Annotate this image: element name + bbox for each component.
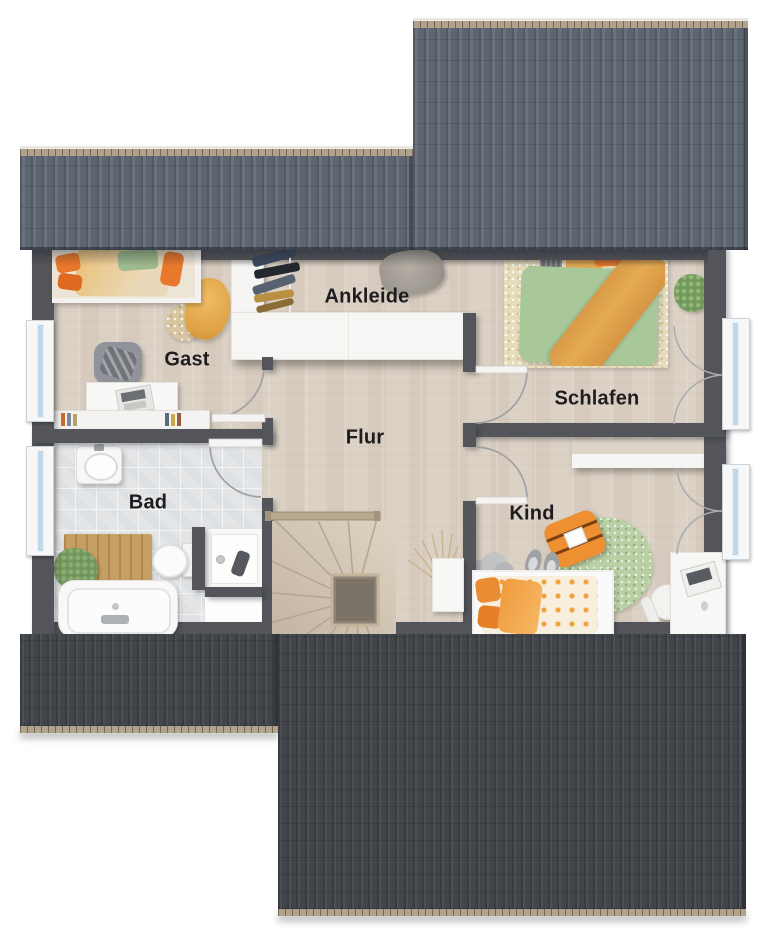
schlafen-door-leaf	[476, 366, 527, 373]
schlafen-window-arc-upper	[674, 326, 722, 375]
schlafen-door-arc	[476, 372, 527, 423]
stair-void-shade	[336, 579, 374, 621]
room-label-bad: Bad	[129, 492, 167, 515]
floor-plan-canvas: Gast Ankleide Schlafen Flur Bad Kind	[0, 0, 775, 945]
gast-door-leaf	[212, 414, 265, 422]
roof-top-right-ridge	[413, 21, 748, 28]
schlafen-window-arc-lower	[674, 375, 722, 424]
flur-planter	[432, 558, 464, 612]
stair-handrail-post-left	[265, 511, 271, 521]
stair-handrail	[266, 512, 380, 520]
roof-bottom-right-eave	[278, 909, 746, 916]
stair-handrail-post-right	[374, 511, 380, 521]
roof-top-left-ridge	[20, 149, 413, 156]
room-label-flur: Flur	[346, 427, 385, 450]
roof-bottom-left	[20, 634, 278, 726]
kind-window-arc-lower	[677, 511, 722, 554]
room-label-kind: Kind	[509, 503, 554, 526]
room-label-gast: Gast	[164, 349, 209, 372]
gast-door-arc	[212, 370, 264, 418]
kind-window-arc-upper	[677, 468, 722, 511]
room-label-ankleide: Ankleide	[325, 286, 410, 309]
kind-door-arc	[476, 447, 527, 500]
roof-top-left	[20, 156, 413, 250]
roof-bottom-left-eave	[20, 726, 278, 733]
roof-top-right	[413, 28, 748, 250]
roof-shadow-strip	[32, 250, 708, 266]
bad-door-leaf	[209, 439, 262, 447]
roof-bottom-right	[278, 634, 746, 909]
room-label-schlafen: Schlafen	[555, 388, 640, 411]
bad-door-arc	[210, 446, 261, 497]
